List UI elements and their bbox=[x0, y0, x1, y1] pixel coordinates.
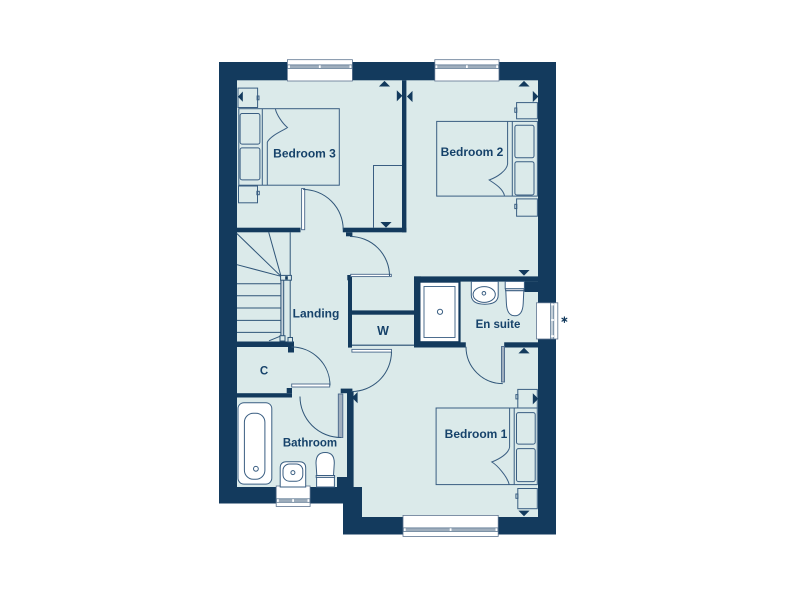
svg-text:Bedroom 1: Bedroom 1 bbox=[445, 427, 508, 441]
svg-text:En suite: En suite bbox=[476, 319, 521, 331]
svg-text:W: W bbox=[377, 324, 389, 338]
svg-text:Bedroom 2: Bedroom 2 bbox=[441, 145, 504, 159]
svg-text:Bedroom 3: Bedroom 3 bbox=[273, 147, 336, 161]
svg-text:C: C bbox=[260, 366, 268, 378]
svg-text:Landing: Landing bbox=[293, 307, 340, 321]
svg-text:Bathroom: Bathroom bbox=[283, 437, 337, 449]
